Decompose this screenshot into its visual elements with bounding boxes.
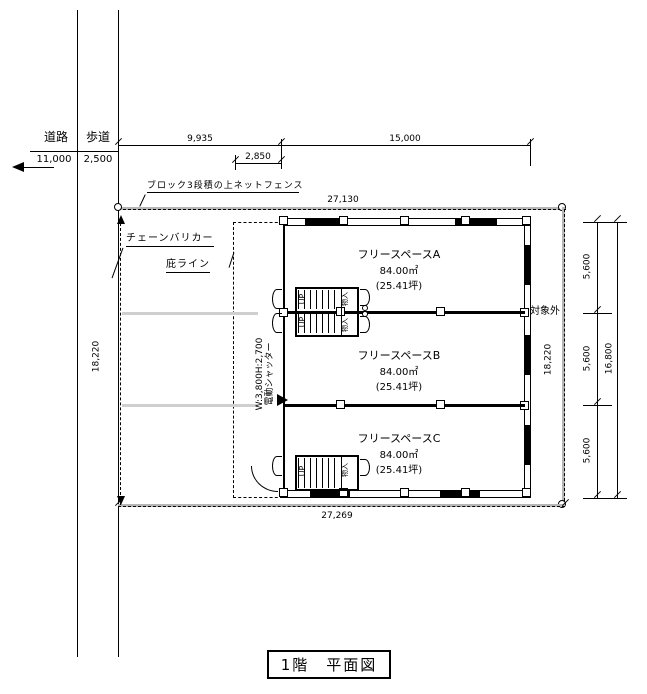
stair-up-label: UP	[298, 289, 308, 309]
road-label: 道路	[36, 131, 76, 145]
top-dim-line	[118, 145, 530, 146]
road-direction-line	[22, 167, 54, 168]
stair-up-label: UP	[298, 461, 308, 481]
column	[400, 216, 409, 225]
right-dim-tick	[583, 405, 612, 406]
canopy-bay-line	[122, 404, 258, 407]
column	[522, 488, 531, 497]
building-west-wall	[283, 218, 285, 498]
floor-plan-drawing: 道路 歩道 11,000 2,500 9,935 15,000 2,850 ブロ…	[0, 0, 647, 694]
building-south-wall-outer	[283, 497, 531, 498]
road-direction-arrow-icon	[12, 162, 24, 172]
sidewalk-edge-line	[118, 10, 119, 657]
dim-slash	[594, 215, 601, 222]
dim-5600-bottom: 5,600	[583, 433, 596, 469]
canopy-dim-line	[235, 163, 281, 164]
column	[279, 488, 288, 497]
dim-27130: 27,130	[312, 195, 374, 205]
space-name: フリースペースC	[339, 430, 459, 446]
out-of-scope-label: 対象外	[530, 306, 560, 318]
fence-leader-line	[139, 194, 145, 206]
right-dim-tick	[583, 222, 627, 223]
wall-hatch	[525, 425, 530, 465]
wall-hatch	[440, 491, 480, 497]
right-dim-line-inner	[597, 222, 598, 498]
party-wall-bc	[285, 404, 525, 407]
drawing-title-box: 1階 平面図	[267, 650, 391, 679]
space-area-tsubo: (25.41坪)	[339, 277, 459, 292]
column	[461, 488, 470, 497]
free-space-a-label: フリースペースA 84.00㎡ (25.41坪)	[339, 246, 459, 292]
dim-2850: 2,850	[232, 152, 284, 162]
column	[336, 400, 345, 409]
boundary-left-line	[120, 218, 121, 505]
dim-18220-left: 18,220	[92, 335, 105, 379]
canopy-outline	[233, 222, 234, 498]
canopy-outline	[233, 497, 283, 498]
dim-slash	[614, 215, 621, 222]
space-area: 84.00㎡	[339, 262, 459, 277]
space-name: フリースペースA	[339, 246, 459, 262]
dim-5600-top: 5,600	[583, 249, 596, 285]
road-dim-line	[30, 151, 118, 152]
road-width-dim: 11,000	[32, 154, 76, 166]
space-area: 84.00㎡	[339, 363, 459, 378]
free-space-b-label: フリースペースB 84.00㎡ (25.41坪)	[339, 347, 459, 393]
road-edge-line	[77, 10, 78, 657]
door-swing	[251, 466, 278, 492]
canopy-bay-line	[122, 312, 258, 315]
dim-arrow-down-icon	[117, 496, 125, 505]
column	[461, 216, 470, 225]
column	[279, 216, 288, 225]
sidewalk-width-dim: 2,500	[77, 154, 119, 166]
sidewalk-label: 歩道	[79, 131, 117, 145]
dim-9935: 9,935	[170, 134, 230, 144]
fence-top-centerline	[118, 209, 566, 210]
dim-18220-right: 18,220	[544, 338, 557, 382]
fence-bottom-centerline	[118, 506, 565, 507]
stair-up-label: UP	[298, 312, 308, 332]
right-dim-tick	[583, 498, 627, 499]
dim-27269: 27,269	[306, 511, 368, 521]
fence-label: ブロック3段積の上ネットフェンス	[147, 181, 299, 193]
column	[436, 307, 445, 316]
door-swing	[360, 316, 370, 333]
right-dim-tick	[583, 313, 612, 314]
closet-label: 物入	[341, 314, 353, 336]
wall-hatch	[525, 245, 530, 285]
space-area-tsubo: (25.41坪)	[339, 461, 459, 476]
canopy-outline	[233, 222, 283, 223]
top-dim-tick	[530, 139, 531, 166]
dim-5600-mid: 5,600	[583, 341, 596, 377]
free-space-c-label: フリースペースC 84.00㎡ (25.41坪)	[339, 430, 459, 476]
shutter-marker-icon	[277, 394, 288, 406]
chain-barricade-label: チェーンバリカー	[126, 233, 214, 247]
fence-post	[114, 203, 122, 211]
door-swing	[272, 289, 282, 309]
eave-line-label: 庇ライン	[166, 259, 210, 273]
building-north-wall-inner	[283, 225, 531, 226]
space-name: フリースペースB	[339, 347, 459, 363]
wall-hatch	[305, 219, 343, 225]
dim-arrow-up-icon	[117, 215, 125, 224]
shutter-size-label: W:3,800H:2,700	[255, 329, 265, 419]
column	[339, 216, 348, 225]
building-east-wall-outer	[530, 218, 531, 498]
space-area-tsubo: (25.41坪)	[339, 378, 459, 393]
column	[400, 488, 409, 497]
space-area: 84.00㎡	[339, 446, 459, 461]
drawing-title: 1階 平面図	[281, 654, 378, 675]
dim-16800: 16,800	[605, 338, 618, 380]
fence-right-centerline	[564, 209, 565, 506]
shutter-name-label: 電動シャッター	[265, 329, 275, 419]
dim-15000: 15,000	[372, 134, 438, 144]
column	[436, 400, 445, 409]
wall-hatch	[525, 335, 530, 375]
